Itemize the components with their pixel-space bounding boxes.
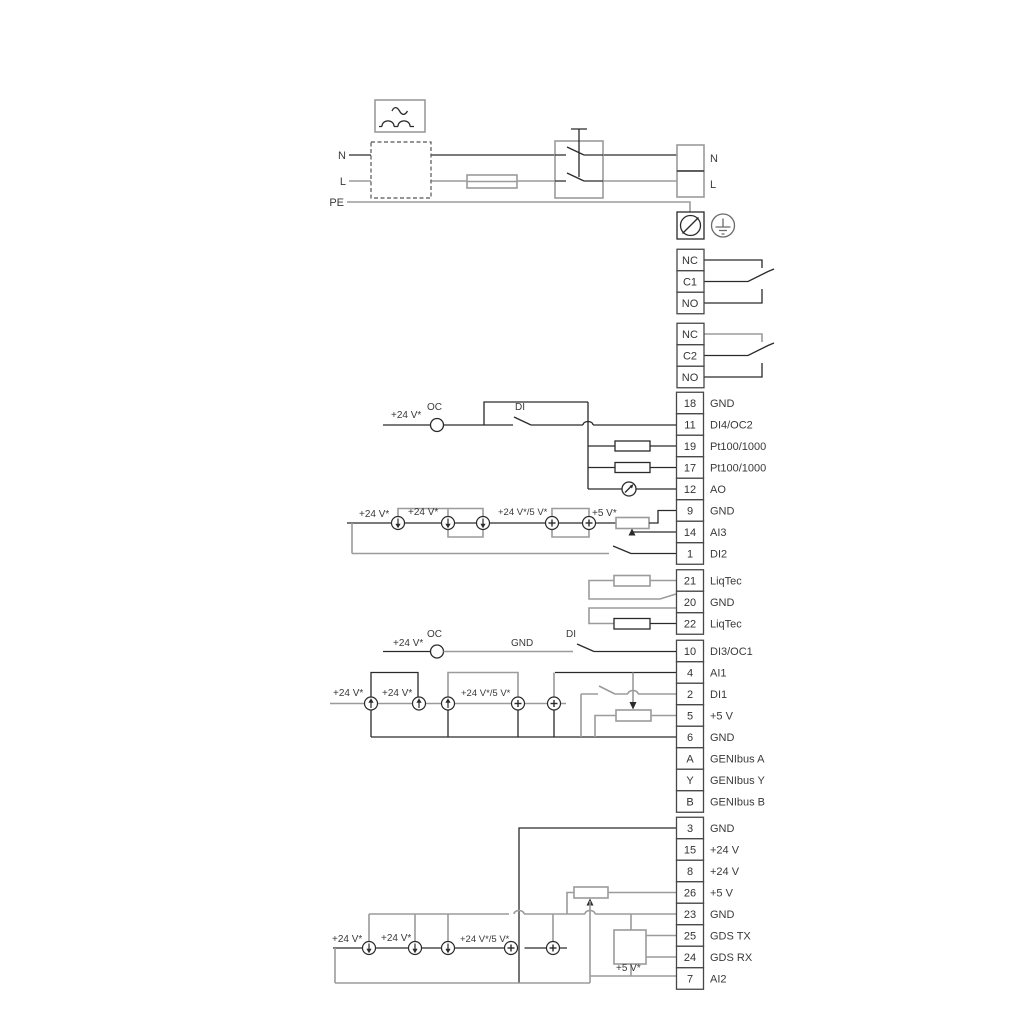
- di4-loop-wire: [484, 402, 588, 425]
- di1-switch: [599, 686, 676, 694]
- terminal-number: 11: [684, 420, 695, 432]
- label-24v-ba: +24 V*: [332, 934, 362, 945]
- terminal-number: 7: [687, 974, 693, 986]
- terminal-number: 25: [684, 931, 696, 943]
- terminal-label: GENIbus Y: [710, 775, 765, 787]
- current-source-down-icon: [392, 517, 405, 530]
- liqtec-sensor-1: [614, 576, 650, 587]
- gnd3-wire: [519, 828, 676, 983]
- label-l-right: L: [710, 179, 716, 191]
- relay2-c2: C2: [683, 351, 697, 363]
- relay1-c1: C1: [683, 277, 697, 289]
- gds-ai2-section: +24 V* +24 V* +24 V*/5 V* +5 V*: [332, 828, 676, 983]
- label-24v-r2b: +24 V*: [408, 507, 438, 518]
- terminal-label: +5 V: [710, 888, 734, 900]
- label-24v5v-r2: +24 V*/5 V*: [498, 507, 548, 518]
- di4-pt100-ao-section: +24 V* OC DI: [383, 402, 676, 496]
- di2-switch: [613, 546, 676, 554]
- terminal-label: DI1: [710, 689, 727, 701]
- relay1-section: NC C1 NO: [677, 249, 774, 314]
- pt100-2-resistor: [615, 463, 650, 473]
- terminal-number: 4: [687, 668, 693, 680]
- label-24v-r5b: +24 V*: [382, 688, 412, 699]
- label-24v-r5a: +24 V*: [333, 688, 363, 699]
- terminal-label: AI2: [710, 974, 727, 986]
- wiring-diagram: N L PE N L NC C1 NO NC C2 NO: [0, 0, 1024, 1024]
- label-gnd-r4: GND: [511, 638, 533, 649]
- label-5v-b: +5 V*: [616, 963, 641, 974]
- relay2-contact: [704, 343, 774, 356]
- terminal-group-d: 3 15 8 26 23 25 24 7 GND +24 V +24 V +5 …: [677, 817, 753, 989]
- terminal-label: GDS RX: [710, 952, 753, 964]
- terminal-number: Y: [686, 775, 694, 787]
- label-oc-r4: OC: [427, 629, 442, 640]
- terminal-label: GND: [710, 732, 735, 744]
- terminal-label: GDS TX: [710, 931, 751, 943]
- voltage-source-icon: [546, 517, 559, 530]
- ac-supply-symbol: [375, 100, 425, 132]
- relay1-no-wire: [704, 289, 762, 303]
- relay2-no-wire: [704, 363, 762, 377]
- relay2-no: NO: [682, 372, 699, 384]
- relay1-contact: [704, 269, 774, 282]
- terminal-number: A: [686, 754, 694, 766]
- terminal-number: 9: [687, 506, 693, 518]
- terminal-number: 20: [684, 597, 696, 609]
- terminal-number: 6: [687, 732, 693, 744]
- relay2-nc: NC: [682, 329, 698, 341]
- terminal-number: 23: [684, 909, 696, 921]
- terminal-number: 12: [684, 484, 696, 496]
- terminal-number: 15: [684, 845, 696, 857]
- terminal-label: GND: [710, 398, 735, 410]
- current-source-up-icon: [365, 697, 378, 710]
- filter-box: [371, 142, 431, 198]
- terminal-number: B: [686, 797, 693, 809]
- terminal-number: 26: [684, 888, 696, 900]
- terminal-label: +5 V: [710, 711, 734, 723]
- relay2-nc-wire: [704, 334, 762, 342]
- voltage-source-icon: [512, 697, 525, 710]
- voltage-source-icon: [548, 697, 561, 710]
- meter-icon: [622, 482, 636, 496]
- label-24v-r2a: +24 V*: [359, 509, 389, 520]
- label-24v5v-r5: +24 V*/5 V*: [461, 688, 511, 699]
- earth-icon: [712, 214, 735, 237]
- current-source-up-icon: [442, 697, 455, 710]
- terminal-number: 22: [684, 619, 696, 631]
- terminal-label: +24 V: [710, 845, 740, 857]
- terminal-label: Pt100/1000: [710, 463, 766, 475]
- pt100-1-resistor: [615, 441, 650, 451]
- terminal-label: GENIbus A: [710, 754, 765, 766]
- pe-terminal-symbol: [677, 212, 704, 239]
- ai2-pot: [574, 887, 608, 898]
- setpoint-pot: [616, 518, 649, 529]
- terminal-label: GENIbus B: [710, 797, 765, 809]
- terminal-number: 8: [687, 866, 693, 878]
- terminal-label: AO: [710, 484, 726, 496]
- current-source-down-icon: [363, 942, 376, 955]
- di3-switch: [577, 644, 676, 652]
- label-l-left: L: [340, 176, 346, 188]
- terminal-number: 17: [684, 463, 696, 475]
- current-source-up-icon: [413, 697, 426, 710]
- pot-to-gnd9-wire: [649, 511, 676, 524]
- oc-output-circle: [431, 419, 444, 432]
- fuse-symbol: [467, 175, 517, 188]
- terminal-number: 5: [687, 711, 693, 723]
- terminal-number: 24: [684, 952, 696, 964]
- terminal-label: GND: [710, 909, 735, 921]
- pot-to-gnd-wire: [595, 716, 616, 738]
- gds-sensor-box: [614, 930, 646, 964]
- voltage-source-icon: [547, 942, 560, 955]
- terminal-label: LiqTec: [710, 576, 742, 588]
- label-di-r1: DI: [515, 402, 525, 413]
- terminal-group-a: 18 11 19 17 12 9 14 1 GND DI4/OC2 Pt100/…: [677, 392, 767, 564]
- relay2-section: NC C2 NO: [677, 323, 774, 388]
- label-24v-r4: +24 V*: [393, 638, 423, 649]
- terminal-label: DI2: [710, 549, 727, 561]
- power-section: N L PE N L: [329, 100, 734, 239]
- terminal-label: DI4/OC2: [710, 420, 753, 432]
- label-oc-r1: OC: [427, 402, 442, 413]
- pe-wire: [347, 202, 690, 212]
- terminal-number: 1: [687, 549, 693, 561]
- bracket-down-r5: [371, 710, 554, 737]
- terminal-label: AI1: [710, 668, 727, 680]
- label-n-right: N: [710, 153, 718, 165]
- terminal-label: DI3/OC1: [710, 646, 753, 658]
- label-pe-left: PE: [329, 197, 344, 209]
- gnd23-rail: [369, 911, 676, 914]
- terminal-label: +24 V: [710, 866, 740, 878]
- ai1-di1-section: +24 V* +24 V* +24 V*/5 V*: [330, 673, 676, 738]
- feedback-pot: [616, 710, 651, 721]
- label-n-left: N: [338, 150, 346, 162]
- pot-left-bracket: [567, 893, 574, 915]
- bracket-bottom-1-r2: [448, 530, 483, 538]
- di4-switch-wire: [484, 417, 676, 425]
- terminal-number: 18: [684, 398, 696, 410]
- terminal-label: GND: [710, 823, 735, 835]
- label-5v-r2: +5 V*: [592, 508, 617, 519]
- terminal-number: 10: [684, 646, 696, 658]
- relay1-no: NO: [682, 298, 699, 310]
- terminal-number: 14: [684, 527, 696, 539]
- label-di-r4: DI: [566, 629, 576, 640]
- terminal-label: AI3: [710, 527, 727, 539]
- terminal-number: 19: [684, 441, 696, 453]
- di3-section: +24 V* OC GND DI: [383, 629, 676, 658]
- terminal-group-b: 21 20 22 LiqTec GND LiqTec: [677, 570, 743, 635]
- power-terminal-block: [677, 145, 704, 197]
- liqtec-sensor-2: [614, 619, 650, 630]
- relay1-nc-wire: [704, 260, 762, 268]
- current-source-down-icon: [442, 942, 455, 955]
- bracket-top-2-r2: [552, 509, 589, 517]
- terminal-number: 2: [687, 689, 693, 701]
- terminal-number: 3: [687, 823, 693, 835]
- terminal-label: Pt100/1000: [710, 441, 766, 453]
- terminal-number: 21: [684, 576, 696, 588]
- label-24v5v-b: +24 V*/5 V*: [460, 934, 510, 945]
- mains-switch: [555, 129, 603, 198]
- oc-output-circle-2: [431, 645, 444, 658]
- wiring-diagram-page: N L PE N L NC C1 NO NC C2 NO: [0, 0, 1024, 1024]
- terminal-group-c: 10 4 2 5 6 A Y B DI3/OC1 AI1 DI1 +5 V GN…: [677, 640, 766, 812]
- liqtec-section: [589, 576, 676, 630]
- relay1-nc: NC: [682, 255, 698, 267]
- terminal-label: LiqTec: [710, 619, 742, 631]
- current-source-down-icon: [442, 517, 455, 530]
- terminal-label: GND: [710, 597, 735, 609]
- terminal-label: GND: [710, 506, 735, 518]
- label-24v-r1: +24 V*: [391, 410, 421, 421]
- current-source-down-icon: [477, 517, 490, 530]
- label-24v-bb: +24 V*: [381, 933, 411, 944]
- bracket-bottom-2-r2: [552, 530, 589, 538]
- pot-wiper-arrow-r5: [630, 702, 637, 710]
- ai3-di2-section: +24 V* +24 V* +24 V*/5 V* +5 V*: [347, 507, 676, 554]
